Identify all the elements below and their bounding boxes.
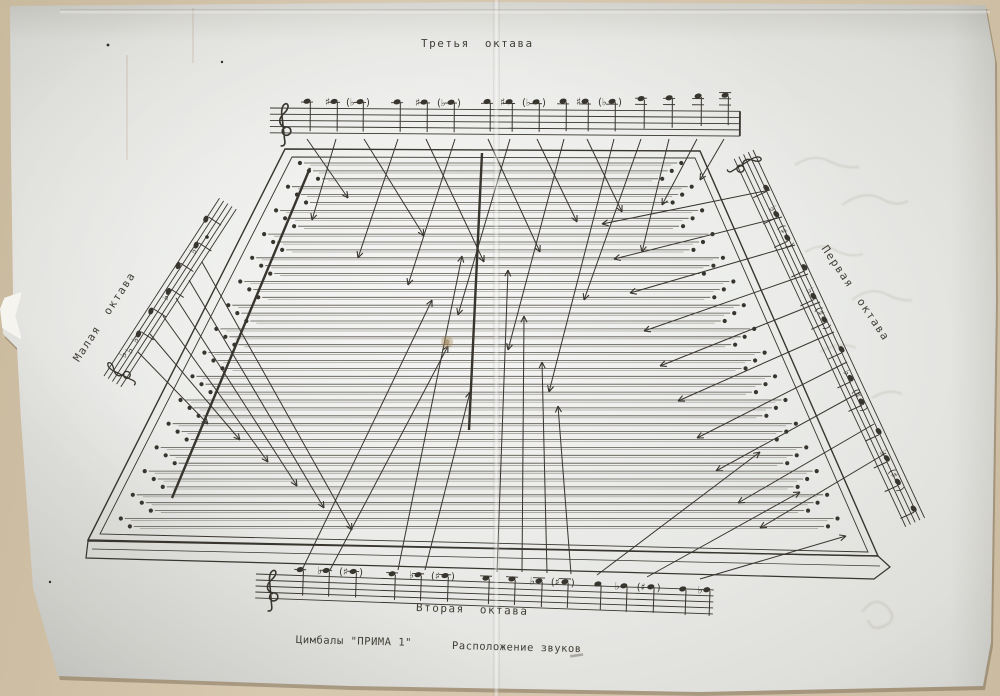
svg-text:(♯: (♯: [812, 305, 826, 318]
svg-text:): ): [542, 98, 546, 109]
svg-text:(♭: (♭: [522, 98, 531, 109]
svg-text:♭: ♭: [159, 292, 172, 303]
svg-text:♯: ♯: [576, 96, 581, 108]
svg-text:): ): [359, 568, 363, 579]
svg-text:): ): [618, 97, 622, 108]
cimbalom-diagram: ♯(♭)♯(♭)♯(♭)♯(♭)♭(♯)♭(♯)♭(♯)♭(♯)♭♭♭♭♭♭♭(…: [0, 0, 1000, 696]
svg-text:(♯: (♯: [886, 468, 900, 481]
svg-text:): ): [451, 572, 455, 583]
svg-text:♭: ♭: [615, 581, 620, 593]
svg-text:(♭: (♭: [437, 98, 446, 109]
svg-text:♭: ♭: [409, 569, 414, 581]
label-third-octave: Третья октава: [421, 37, 534, 50]
svg-text:(♭: (♭: [346, 98, 355, 109]
svg-text:): ): [657, 583, 661, 594]
svg-text:♭: ♭: [697, 584, 702, 596]
photo-of-document: ♯(♭)♯(♭)♯(♭)♯(♭)♭(♯)♭(♯)♭(♯)♭(♯)♭♭♭♭♭♭♭(…: [0, 0, 1000, 696]
svg-text:): ): [457, 98, 461, 109]
svg-text:♭: ♭: [317, 565, 322, 577]
svg-text:(♭: (♭: [598, 97, 607, 108]
svg-text:(♯: (♯: [339, 567, 348, 578]
svg-text:(♯: (♯: [431, 571, 440, 582]
svg-text:): ): [366, 98, 370, 109]
svg-text:(♯: (♯: [637, 582, 646, 593]
svg-text:): ): [571, 578, 575, 589]
fold-crease-vertical: [493, 0, 500, 696]
svg-text:(♯: (♯: [551, 577, 560, 588]
svg-text:♯: ♯: [500, 97, 505, 109]
fold-crease-horizontal: [60, 9, 990, 14]
